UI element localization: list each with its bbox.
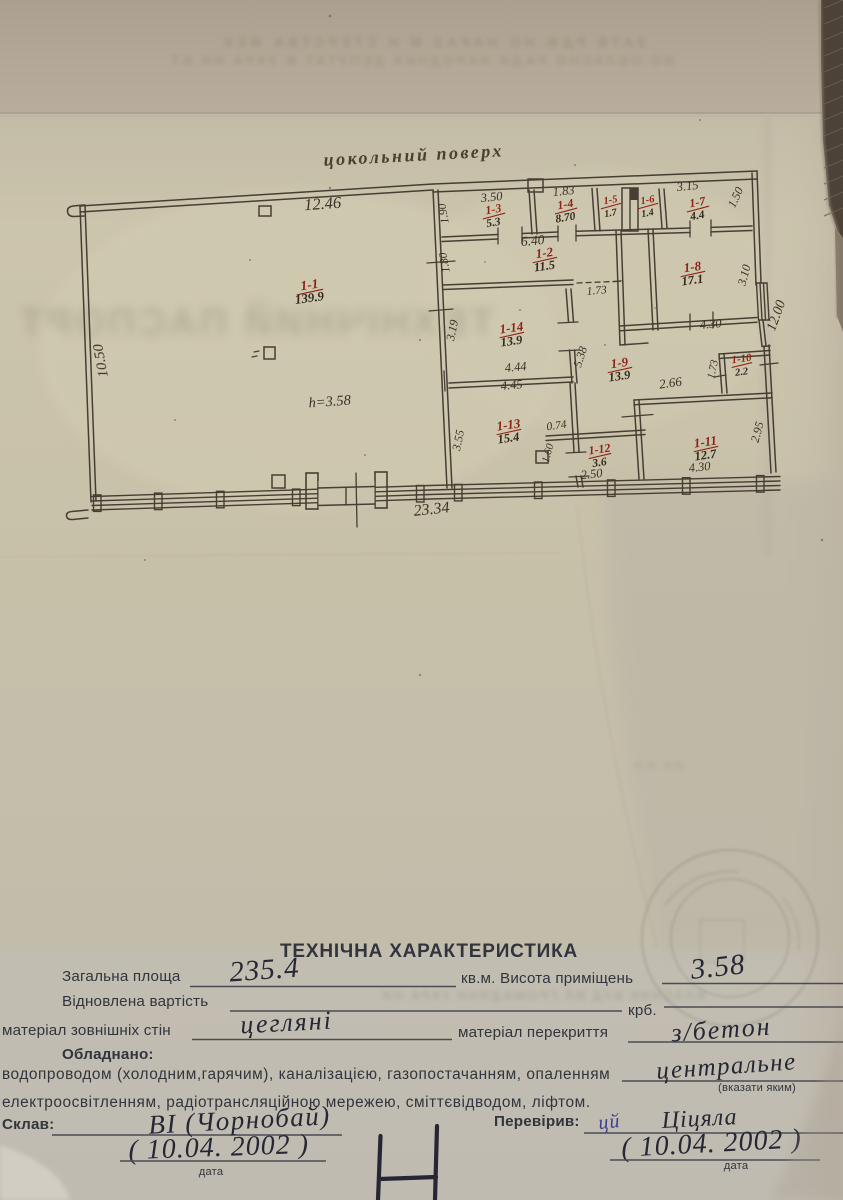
svg-text:Загальна площа: Загальна площа	[62, 968, 181, 985]
svg-text:4.45: 4.45	[500, 377, 523, 393]
svg-text:матеріал перекриття: матеріал перекриття	[458, 1024, 608, 1041]
svg-text:5.3: 5.3	[485, 216, 501, 230]
svg-text:4.30: 4.30	[699, 316, 723, 332]
svg-text:3.15: 3.15	[675, 178, 699, 194]
svg-text:2.66: 2.66	[658, 373, 683, 391]
svg-text:4.44: 4.44	[504, 359, 527, 375]
svg-text:цегляні: цегляні	[240, 1006, 334, 1040]
svg-text:1.4: 1.4	[640, 207, 654, 220]
svg-text:Відновлена вартість: Відновлена вартість	[62, 993, 208, 1010]
svg-text:(вказати яким): (вказати яким)	[718, 1082, 796, 1094]
svg-text:ТЕХНІЧНА ХАРАКТЕРИСТИКА: ТЕХНІЧНА ХАРАКТЕРИСТИКА	[280, 941, 578, 962]
svg-text:Обладнано:: Обладнано:	[62, 1046, 154, 1063]
svg-text:2.2: 2.2	[733, 366, 749, 379]
svg-text:3.58: 3.58	[688, 948, 747, 986]
svg-text:ВО ОБЛАСНО РАДИ НАРОДНИХ ДЕПУТ: ВО ОБЛАСНО РАДИ НАРОДНИХ ДЕПУТАТ В УКРА …	[168, 53, 673, 68]
svg-text:11.5: 11.5	[533, 258, 556, 275]
svg-text:кв.м. Висота приміщень: кв.м. Висота приміщень	[461, 970, 633, 987]
svg-text:235.4: 235.4	[228, 952, 300, 989]
svg-text:ЗАТВ РДЖ НО НАКАЗ М Н СТЕРСТВА: ЗАТВ РДЖ НО НАКАЗ М Н СТЕРСТВА ЖЕК	[220, 34, 647, 50]
svg-text:цй: цй	[597, 1110, 621, 1134]
svg-text:12.46: 12.46	[303, 193, 342, 215]
svg-text:Склав:: Склав:	[2, 1116, 54, 1133]
svg-text:водопроводом (холодним,гарячим: водопроводом (холодним,гарячим), каналіз…	[2, 1066, 610, 1083]
svg-text:1.73: 1.73	[586, 284, 607, 298]
svg-text:крб.: крб.	[628, 1002, 657, 1019]
svg-text:дата: дата	[199, 1166, 224, 1178]
svg-text:Перевірив:: Перевірив:	[494, 1113, 580, 1130]
svg-text:h=3.58: h=3.58	[308, 392, 352, 411]
svg-text:3.6: 3.6	[591, 456, 608, 470]
svg-text:ВЛАСНИК БУД ВЛ ГРОМАДЯНИ УКРА: ВЛАСНИК БУД ВЛ ГРОМАДЯНИ УКРА НИ	[381, 988, 706, 1003]
svg-text:матеріал зовнішніх стін: матеріал зовнішніх стін	[2, 1022, 171, 1039]
svg-text:пл ля: пл ля	[634, 757, 685, 774]
svg-text:дата: дата	[724, 1160, 749, 1172]
